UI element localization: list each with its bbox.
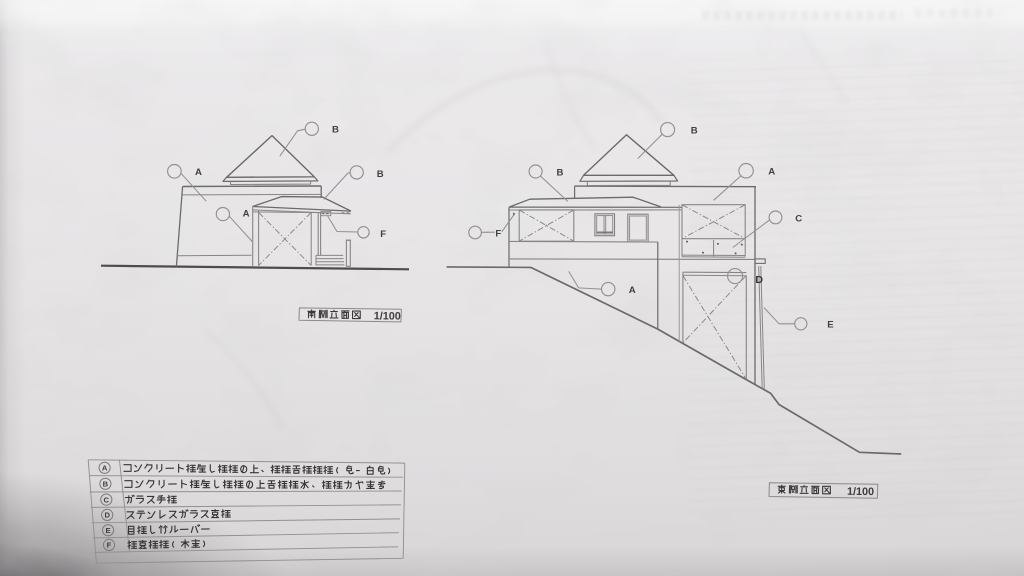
svg-text:B: B [103,480,109,489]
svg-text:A: A [768,167,775,178]
svg-text:C: C [104,495,110,504]
svg-text:F: F [495,228,501,239]
svg-text:B: B [557,167,564,178]
svg-text:1/100: 1/100 [847,486,874,498]
svg-text:A: A [629,285,636,296]
svg-text:E: E [106,526,111,535]
svg-text:E: E [827,320,834,331]
svg-text:D: D [104,511,110,520]
svg-text:D: D [755,274,763,286]
svg-text:A: A [243,209,250,220]
svg-text:A: A [102,464,108,473]
svg-text:F: F [107,541,112,550]
svg-text:A: A [195,167,202,178]
svg-text:B: B [691,126,698,137]
svg-text:1/100: 1/100 [374,310,401,322]
svg-text:B: B [377,169,384,180]
svg-text:B: B [332,125,339,136]
svg-text:F: F [380,229,386,240]
svg-text:C: C [795,213,802,224]
